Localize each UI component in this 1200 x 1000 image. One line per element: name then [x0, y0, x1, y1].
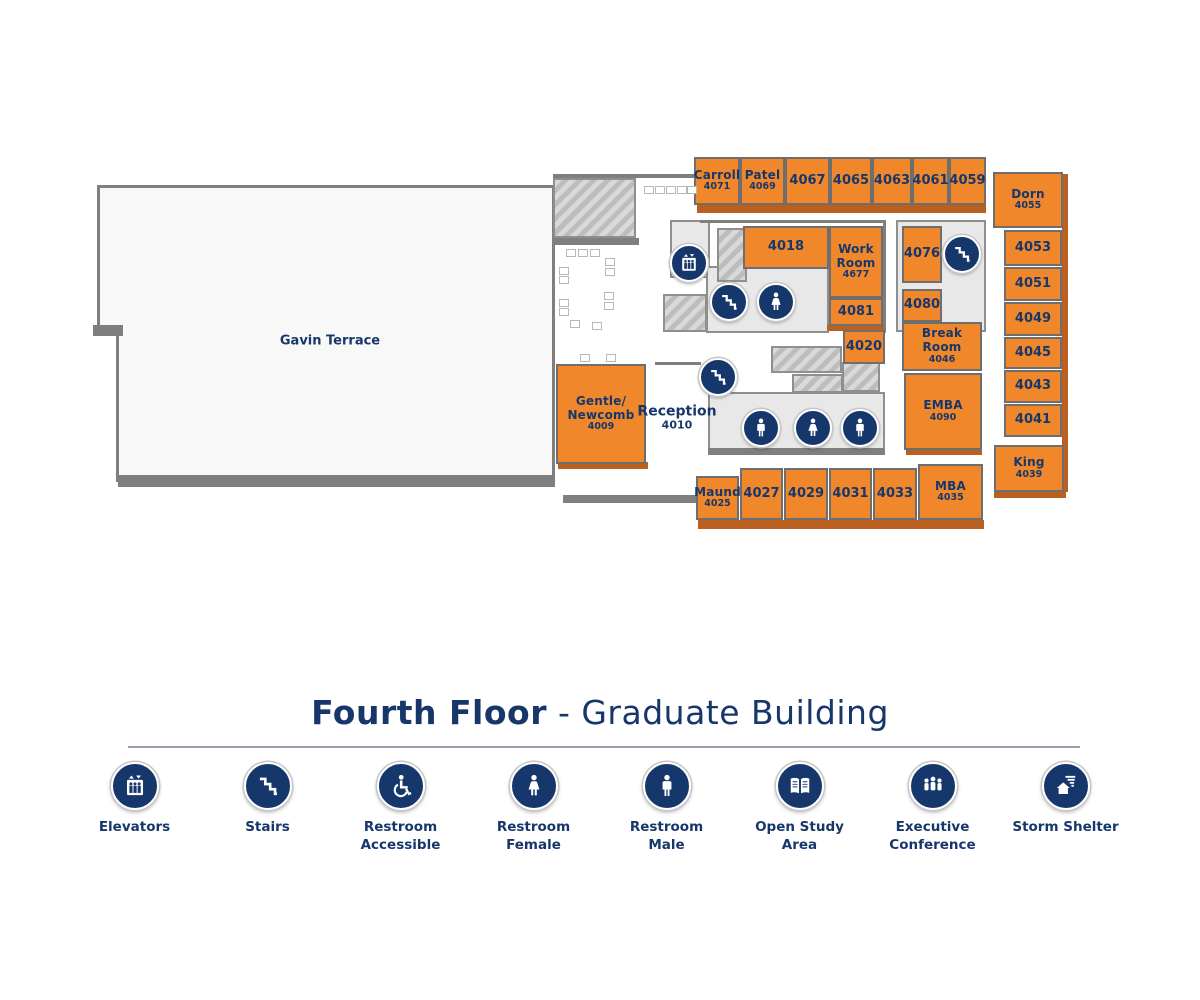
area-label-line: Reception: [637, 404, 716, 420]
legend-item-stairs: Stairs: [201, 762, 334, 854]
legend-label: ExecutiveConference: [889, 819, 975, 854]
room-4039: King4039: [994, 445, 1064, 492]
accessible-icon: [377, 762, 425, 810]
female-icon: [757, 283, 795, 321]
room-label: 4065: [833, 174, 869, 189]
room-4046: Break Room4046: [902, 322, 982, 371]
room-label: 4053: [1015, 241, 1051, 256]
room-4055: Dorn4055: [993, 172, 1063, 228]
room-label: 4055: [1015, 201, 1041, 212]
wall: [883, 220, 886, 333]
furniture: [566, 249, 576, 257]
room-label: 4071: [704, 182, 730, 193]
room-4041: 4041: [1004, 404, 1062, 437]
wall: [708, 448, 885, 455]
stairs-icon: [699, 358, 737, 396]
room-label: King: [1013, 456, 1044, 470]
furniture: [604, 292, 614, 300]
room-4049: 4049: [1004, 302, 1062, 336]
legend: ElevatorsStairsRestroomAccessibleRestroo…: [68, 762, 1132, 854]
elevator-icon: [670, 244, 708, 282]
male-icon: [643, 762, 691, 810]
room-4045: 4045: [1004, 337, 1062, 369]
furniture: [559, 299, 569, 307]
room-label: Work: [838, 243, 874, 257]
room-label: Room: [836, 257, 875, 271]
room-label: 4033: [877, 487, 913, 502]
room-4067: 4067: [785, 157, 830, 205]
legend-label: Elevators: [99, 819, 170, 837]
area-label-reception: Reception4010: [637, 404, 716, 433]
hatched-stair-shaft: [792, 374, 843, 393]
furniture: [580, 354, 590, 362]
legend-label: RestroomMale: [630, 819, 703, 854]
room-4677: WorkRoom4677: [829, 226, 883, 298]
room-label: EMBA: [923, 399, 962, 413]
terrace-notch: [92, 336, 119, 482]
wall: [700, 220, 886, 223]
room-label: Newcomb: [567, 409, 634, 423]
male-icon: [742, 409, 780, 447]
furniture: [655, 186, 665, 194]
room-label: Maund: [694, 486, 741, 500]
room-4025: Maund4025: [696, 476, 739, 520]
legend-item-female: RestroomFemale: [467, 762, 600, 854]
room-label: Carroll: [694, 169, 741, 183]
furniture: [666, 186, 676, 194]
legend-label: RestroomAccessible: [361, 819, 441, 854]
room-4071: Carroll4071: [694, 157, 740, 205]
book-icon: [776, 762, 824, 810]
room-label: 4043: [1015, 379, 1051, 394]
furniture: [590, 249, 600, 257]
room-label: Dorn: [1011, 188, 1044, 202]
legend-item-executive: ExecutiveConference: [866, 762, 999, 854]
wall: [655, 362, 701, 365]
terrace-step: [93, 325, 123, 336]
furniture: [677, 186, 687, 194]
room-4043: 4043: [1004, 370, 1062, 403]
hatched-stair-shaft: [842, 362, 880, 392]
room-4090: EMBA4090: [904, 373, 982, 450]
room-4065: 4065: [830, 157, 872, 205]
room-label: 4067: [789, 174, 825, 189]
female-icon: [510, 762, 558, 810]
legend-item-male: RestroomMale: [600, 762, 733, 854]
room-4029: 4029: [784, 468, 828, 520]
room-4027: 4027: [740, 468, 783, 520]
gavin-terrace-area: [97, 185, 555, 478]
room-4061: 4061: [912, 157, 949, 205]
stairs-icon: [943, 235, 981, 273]
room-4018: 4018: [743, 226, 829, 269]
room-label: 4069: [749, 182, 775, 193]
furniture: [605, 268, 615, 276]
hatched-stair-shaft: [663, 294, 707, 332]
room-label: 4018: [768, 240, 804, 255]
page-title: Fourth Floor - Graduate Building: [0, 693, 1200, 732]
furniture: [592, 322, 602, 330]
furniture: [605, 258, 615, 266]
room-label: 4076: [904, 247, 940, 262]
room-label: 4063: [874, 174, 910, 189]
room-4035: MBA4035: [918, 464, 983, 520]
wall: [553, 238, 639, 245]
room-label: 4045: [1015, 346, 1051, 361]
legend-item-book: Open StudyArea: [733, 762, 866, 854]
room-4031: 4031: [829, 468, 872, 520]
room-label: 4025: [704, 499, 730, 510]
furniture: [578, 249, 588, 257]
room-label: 4046: [929, 355, 955, 366]
area-label-gavin-terrace: Gavin Terrace: [280, 335, 380, 350]
room-4009: Gentle/Newcomb4009: [556, 364, 646, 464]
legend-item-elevator: Elevators: [68, 762, 201, 854]
legend-label: Stairs: [245, 819, 290, 837]
male-icon: [841, 409, 879, 447]
room-4080: 4080: [902, 289, 942, 322]
legend-label: Storm Shelter: [1012, 819, 1118, 837]
furniture: [687, 186, 697, 194]
room-label: 4020: [846, 340, 882, 355]
room-4059: 4059: [949, 157, 986, 205]
room-4053: 4053: [1004, 230, 1062, 266]
room-label: 4041: [1015, 413, 1051, 428]
hatched-stair-shaft: [771, 346, 842, 373]
room-label: 4035: [937, 493, 963, 504]
room-label: 4061: [912, 174, 948, 189]
room-label: 4080: [904, 298, 940, 313]
room-label: MBA: [935, 480, 966, 494]
room-label: 4081: [838, 305, 874, 320]
room-label: 4059: [949, 174, 985, 189]
room-label: 4029: [788, 487, 824, 502]
stairs-icon: [244, 762, 292, 810]
female-icon: [794, 409, 832, 447]
furniture: [559, 267, 569, 275]
room-label: 4039: [1016, 470, 1042, 481]
area-label-line: Gavin Terrace: [280, 335, 380, 350]
executive-icon: [909, 762, 957, 810]
room-4020: 4020: [843, 330, 885, 364]
room-label: 4027: [743, 487, 779, 502]
room-4033: 4033: [873, 468, 917, 520]
wall: [563, 495, 711, 503]
room-label: Break Room: [904, 327, 980, 355]
furniture: [559, 276, 569, 284]
room-label: Gentle/: [576, 395, 626, 409]
furniture: [606, 354, 616, 362]
terrace-bottom-wall: [118, 478, 555, 487]
furniture: [644, 186, 654, 194]
floor-plan: Carroll4071Patel406940674065406340614059…: [0, 0, 1200, 660]
title-floor: Fourth Floor: [311, 693, 547, 732]
room-shadow: [698, 520, 984, 529]
stairs-icon: [710, 283, 748, 321]
room-4051: 4051: [1004, 267, 1062, 301]
room-label: 4051: [1015, 277, 1051, 292]
room-label: 4677: [843, 270, 869, 281]
legend-label: RestroomFemale: [497, 819, 570, 854]
hatched-stair-shaft: [553, 178, 636, 238]
room-label: Patel: [745, 169, 781, 183]
room-label: 4090: [930, 413, 956, 424]
room-4076: 4076: [902, 226, 942, 283]
title-separator: -: [547, 693, 581, 732]
wall: [553, 174, 699, 178]
legend-label: Open StudyArea: [755, 819, 844, 854]
room-4063: 4063: [872, 157, 912, 205]
furniture: [559, 308, 569, 316]
area-label-line: 4010: [637, 420, 716, 433]
room-label: 4009: [588, 422, 614, 433]
room-label: 4031: [832, 487, 868, 502]
room-4069: Patel4069: [740, 157, 785, 205]
furniture: [570, 320, 580, 328]
elevator-icon: [111, 762, 159, 810]
shelter-icon: [1042, 762, 1090, 810]
legend-item-accessible: RestroomAccessible: [334, 762, 467, 854]
room-label: 4049: [1015, 312, 1051, 327]
legend-item-shelter: Storm Shelter: [999, 762, 1132, 854]
furniture: [604, 302, 614, 310]
title-divider: [128, 746, 1080, 748]
title-building: Graduate Building: [581, 693, 889, 732]
room-4081: 4081: [829, 298, 883, 326]
room-shadow: [697, 205, 986, 213]
